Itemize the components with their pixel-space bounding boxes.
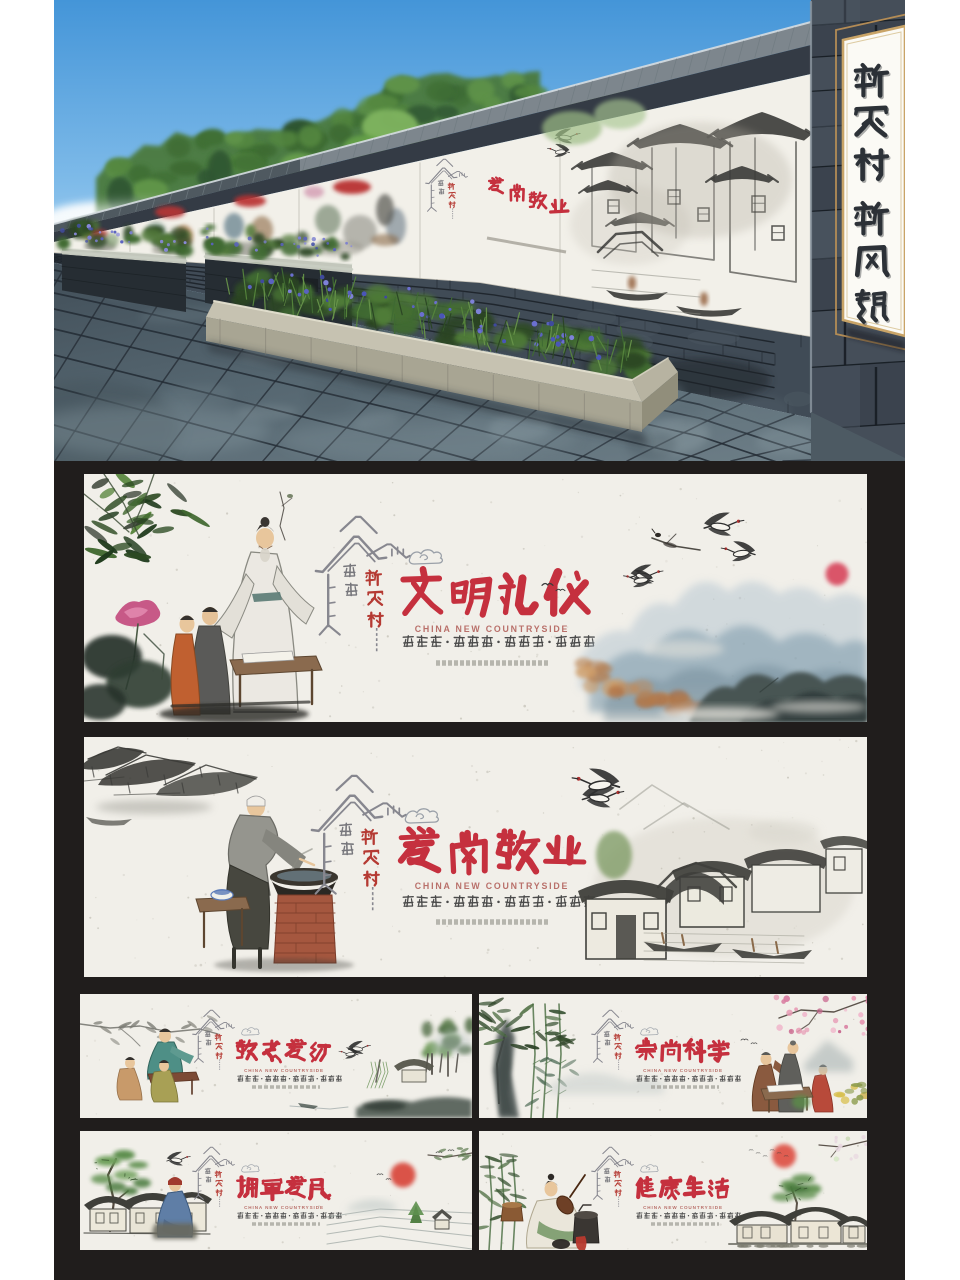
svg-text:CHINA NEW COUNTRYSIDE: CHINA NEW COUNTRYSIDE xyxy=(244,1205,324,1210)
svg-text:CHINA NEW COUNTRYSIDE: CHINA NEW COUNTRYSIDE xyxy=(415,881,569,891)
svg-text:CHINA NEW COUNTRYSIDE: CHINA NEW COUNTRYSIDE xyxy=(244,1068,324,1073)
svg-text:CHINA NEW COUNTRYSIDE: CHINA NEW COUNTRYSIDE xyxy=(643,1205,723,1210)
svg-text:CHINA NEW COUNTRYSIDE: CHINA NEW COUNTRYSIDE xyxy=(415,624,569,634)
svg-text:CHINA NEW COUNTRYSIDE: CHINA NEW COUNTRYSIDE xyxy=(643,1068,723,1073)
